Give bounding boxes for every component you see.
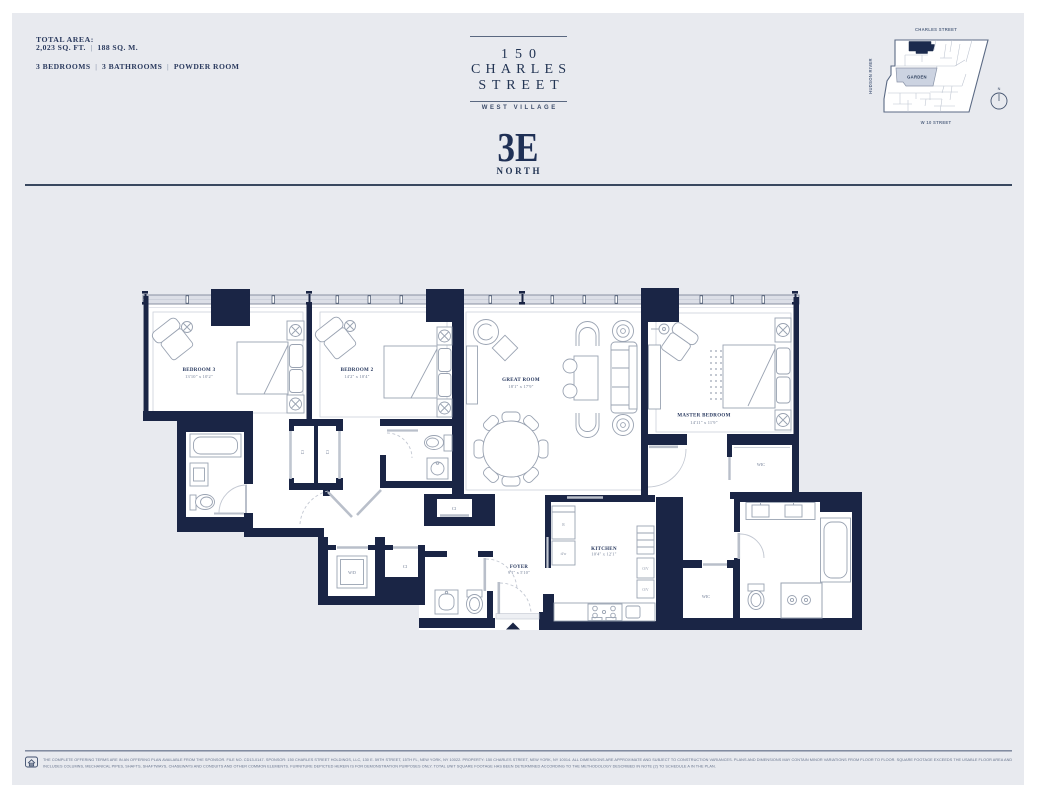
svg-text:18'1" x 17'9": 18'1" x 17'9" <box>508 384 533 389</box>
svg-text:O/V: O/V <box>642 588 649 592</box>
svg-text:10'4" x 12'1": 10'4" x 12'1" <box>591 552 616 557</box>
svg-text:O/V: O/V <box>642 567 649 571</box>
svg-text:HUDSON RIVER: HUDSON RIVER <box>868 58 873 94</box>
svg-text:BEDROOM 2: BEDROOM 2 <box>341 368 374 373</box>
svg-text:INCLUDES COLUMNS, MECHANICAL P: INCLUDES COLUMNS, MECHANICAL PIPES, SHAF… <box>43 765 716 769</box>
svg-text:Cl: Cl <box>325 450 330 455</box>
svg-text:14'2" x 10'4": 14'2" x 10'4" <box>344 374 369 379</box>
svg-text:Cl: Cl <box>403 564 408 569</box>
svg-text:Cl: Cl <box>300 450 305 455</box>
svg-text:WIC: WIC <box>757 462 765 467</box>
svg-text:WIC: WIC <box>702 594 710 599</box>
svg-text:GARDEN: GARDEN <box>907 75 927 80</box>
svg-text:BEDROOM 3: BEDROOM 3 <box>183 368 216 373</box>
svg-text:MASTER BEDROOM: MASTER BEDROOM <box>677 414 730 419</box>
svg-text:14'11" x 11'9": 14'11" x 11'9" <box>690 420 717 425</box>
svg-text:W/D: W/D <box>348 570 356 575</box>
svg-text:R: R <box>562 523 565 527</box>
svg-text:d/w: d/w <box>561 552 567 556</box>
svg-text:N: N <box>998 87 1001 91</box>
svg-text:9'1" x 5'10": 9'1" x 5'10" <box>508 570 530 575</box>
svg-text:Cl: Cl <box>452 506 457 511</box>
svg-text:CHARLES STREET: CHARLES STREET <box>915 27 957 32</box>
svg-text:GREAT ROOM: GREAT ROOM <box>502 378 540 383</box>
svg-text:THE COMPLETE OFFERING TERMS AR: THE COMPLETE OFFERING TERMS ARE IN AN OF… <box>43 758 1012 762</box>
svg-text:W 10 STREET: W 10 STREET <box>921 120 952 125</box>
svg-text:13'10" x 10'2": 13'10" x 10'2" <box>185 374 213 379</box>
